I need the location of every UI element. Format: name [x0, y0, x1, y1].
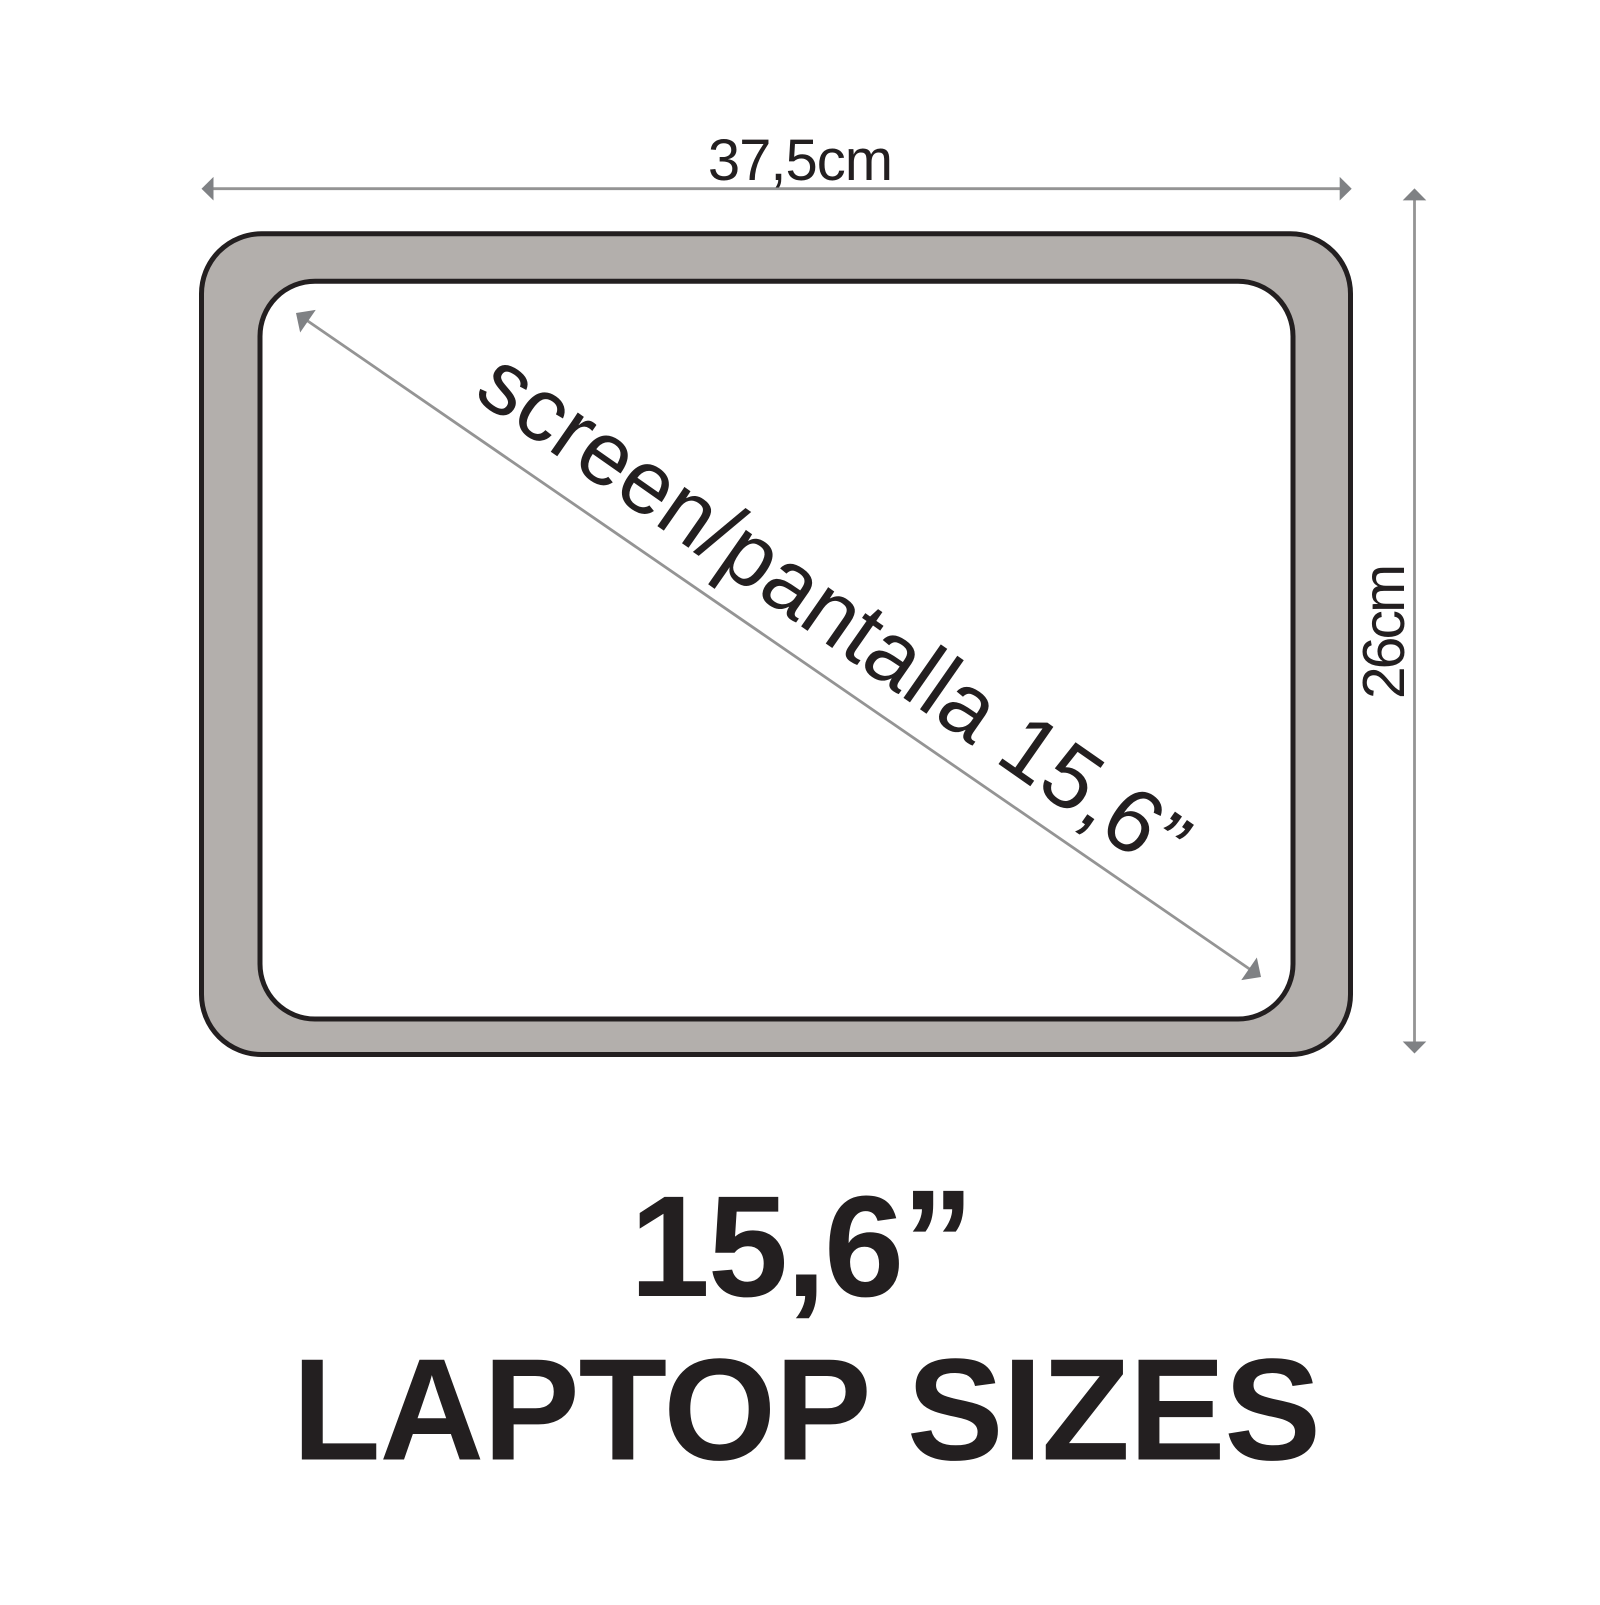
svg-text:37,5cm: 37,5cm — [708, 128, 892, 193]
svg-text:LAPTOP SIZES: LAPTOP SIZES — [292, 1329, 1320, 1491]
svg-text:15,6”: 15,6” — [630, 1160, 972, 1327]
svg-text:26cm: 26cm — [1351, 567, 1417, 699]
